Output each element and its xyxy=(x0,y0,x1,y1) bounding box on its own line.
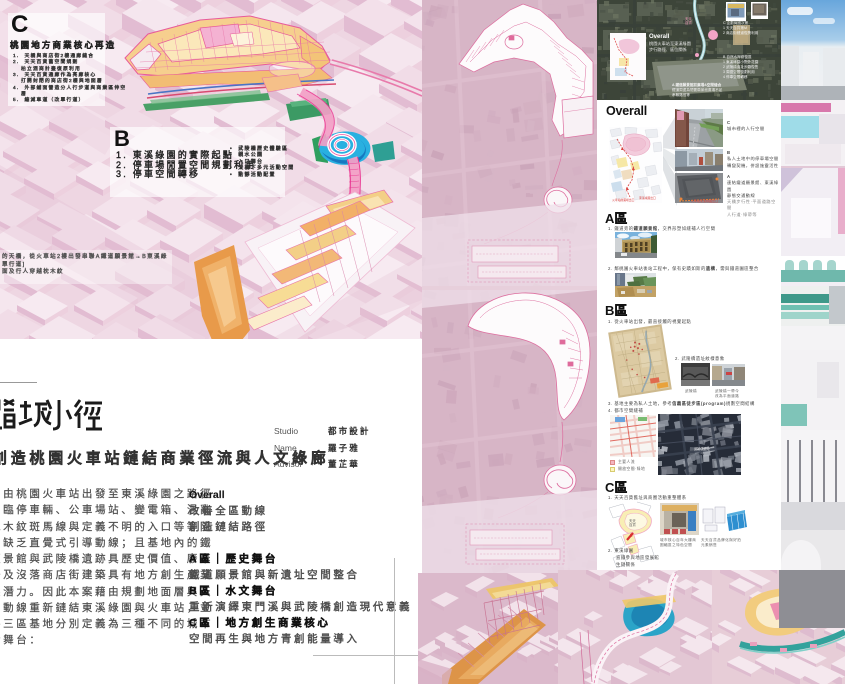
svg-text:1 東溪綠園小野外花園: 1 東溪綠園小野外花園 xyxy=(723,59,759,64)
svg-text:2 商店街鏈道復興利用: 2 商店街鏈道復興利用 xyxy=(723,30,759,35)
svg-text:3 周圍空間復劃利用: 3 周圍空間復劃利用 xyxy=(723,69,755,74)
svg-text:東溪綠園出口: 東溪綠園出口 xyxy=(639,196,656,200)
svg-text:A 鐵道願景館前廣場&空間縫合: A 鐵道願景館前廣場&空間縫合 xyxy=(672,82,722,87)
svg-text:串聯路徑等: 串聯路徑等 xyxy=(672,92,690,97)
svg-text:火車站前廣場出口: 火車站前廣場出口 xyxy=(612,198,635,202)
svg-text:火車站東溪綠園出口: 火車站東溪綠園出口 xyxy=(691,198,718,203)
svg-text:武陵橋遺址: 武陵橋遺址 xyxy=(694,446,711,451)
svg-text:鐵道周邊為閒置願景館廣場不足: 鐵道周邊為閒置願景館廣場不足 xyxy=(672,87,723,92)
svg-text:4 停車空間轉移: 4 停車空間轉移 xyxy=(723,74,748,79)
svg-text:B 自然水岸修復區: B 自然水岸修復區 xyxy=(723,54,752,59)
svg-text:步行路徑、區位關係: 步行路徑、區位關係 xyxy=(649,46,687,53)
svg-text:桃園火車站至東溪綠園: 桃園火車站至東溪綠園 xyxy=(649,40,691,47)
svg-text:百貨: 百貨 xyxy=(685,20,692,25)
svg-text:2 武陵橋遺址步驟復售: 2 武陵橋遺址步驟復售 xyxy=(723,64,759,69)
svg-text:Overall: Overall xyxy=(649,34,670,40)
svg-text:1 天天百貨第M: 1 天天百貨第M xyxy=(723,25,747,30)
svg-text:百貨: 百貨 xyxy=(629,522,636,527)
svg-text:C 企劃商圈次第: C 企劃商圈次第 xyxy=(723,20,749,25)
